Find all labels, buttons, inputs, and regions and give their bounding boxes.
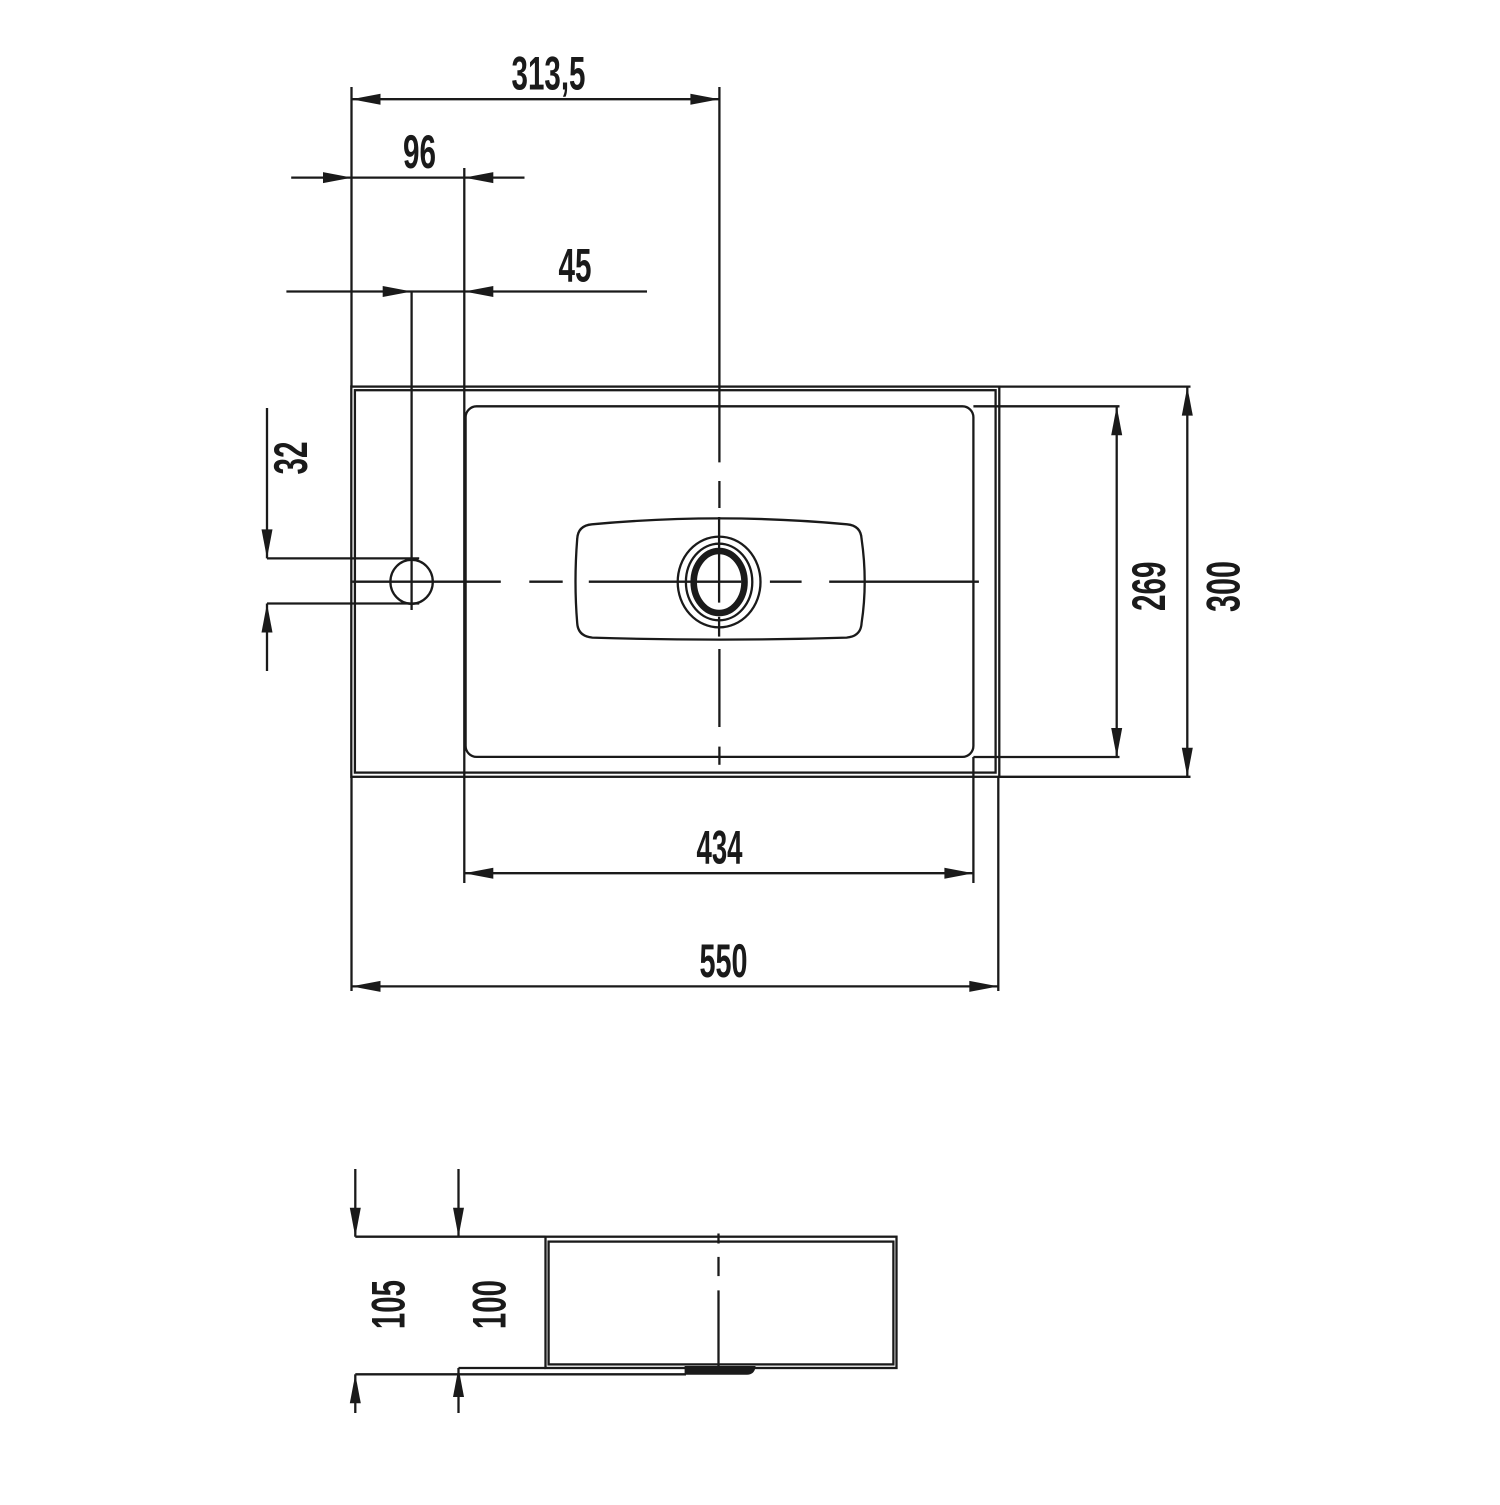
svg-text:300: 300 xyxy=(1197,561,1250,612)
svg-text:45: 45 xyxy=(559,239,592,292)
svg-text:32: 32 xyxy=(264,442,317,475)
svg-text:434: 434 xyxy=(697,821,743,874)
svg-text:105: 105 xyxy=(362,1280,415,1329)
svg-text:550: 550 xyxy=(700,934,748,987)
svg-text:100: 100 xyxy=(463,1280,516,1329)
svg-text:269: 269 xyxy=(1122,562,1175,612)
svg-text:96: 96 xyxy=(403,125,436,178)
svg-text:313,5: 313,5 xyxy=(512,47,586,100)
